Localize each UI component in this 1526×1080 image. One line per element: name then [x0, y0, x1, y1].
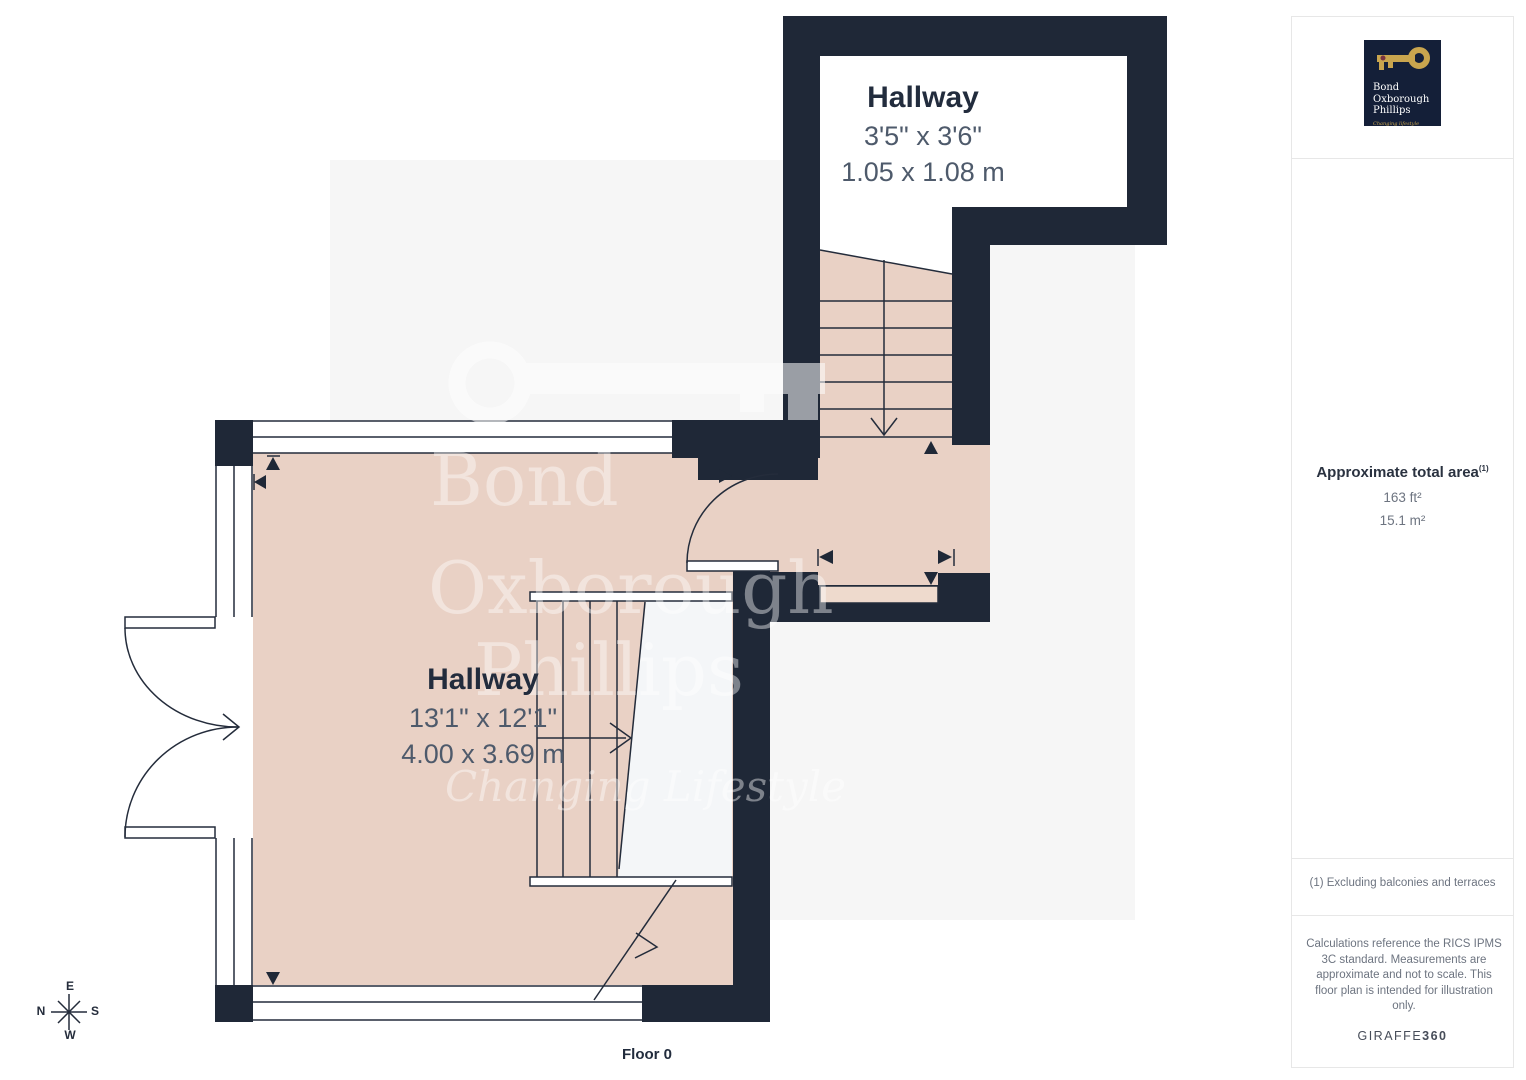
window-bottom: [253, 985, 642, 1021]
logo-text: Bond: [1373, 82, 1441, 94]
stair-bottom-rail: [530, 877, 732, 886]
window-left-upper: [215, 466, 253, 617]
logo-text: Oxborough: [1373, 94, 1441, 106]
compass-west: W: [60, 1028, 80, 1042]
double-door-left: [125, 617, 239, 838]
door-leaf-bottom: [125, 827, 215, 838]
sidebar-divider: [1291, 915, 1514, 916]
key-icon: [1373, 45, 1433, 77]
area-metric: 15.1 m²: [1292, 513, 1513, 528]
agency-logo: Bond Oxborough Phillips Changing lifesty…: [1364, 40, 1441, 126]
sidebar-divider: [1291, 858, 1514, 859]
stair-top-rail: [530, 592, 732, 601]
logo-tagline: Changing lifestyle: [1373, 121, 1441, 127]
entrance-recess: [820, 586, 938, 603]
key-watermark-icon: [410, 330, 930, 450]
compass-rose: [51, 994, 87, 1030]
floor-label: Floor 0: [597, 1046, 697, 1063]
sidebar-footnote: (1) Excluding balconies and terraces: [1292, 877, 1513, 889]
sidebar: [1291, 16, 1514, 1068]
brand-name: GIRAFFE: [1357, 1029, 1422, 1043]
door-leaf-top: [125, 617, 215, 628]
sidebar-divider: [1291, 158, 1514, 159]
floorplan-page: { "colors": { "wall": "#1f2837", "floor"…: [0, 0, 1526, 1080]
window-left-lower: [215, 838, 253, 985]
brand-mark: GIRAFFE360: [1292, 1029, 1513, 1043]
area-title-text: Approximate total area: [1316, 464, 1479, 481]
brand-suffix: 360: [1422, 1029, 1447, 1043]
logo-text: Phillips: [1373, 105, 1441, 117]
sidebar-disclaimer: Calculations reference the RICS IPMS 3C …: [1305, 937, 1503, 1015]
compass-south: S: [85, 1004, 105, 1018]
area-summary-title: Approximate total area(1): [1292, 464, 1513, 481]
door-swing-arc: [125, 727, 238, 837]
compass-east: E: [60, 979, 80, 993]
door-swing-arc: [125, 628, 238, 727]
door-leaf: [687, 561, 778, 571]
compass-north: N: [31, 1004, 51, 1018]
area-imperial: 163 ft²: [1292, 490, 1513, 505]
area-footnote-marker: (1): [1479, 464, 1489, 473]
